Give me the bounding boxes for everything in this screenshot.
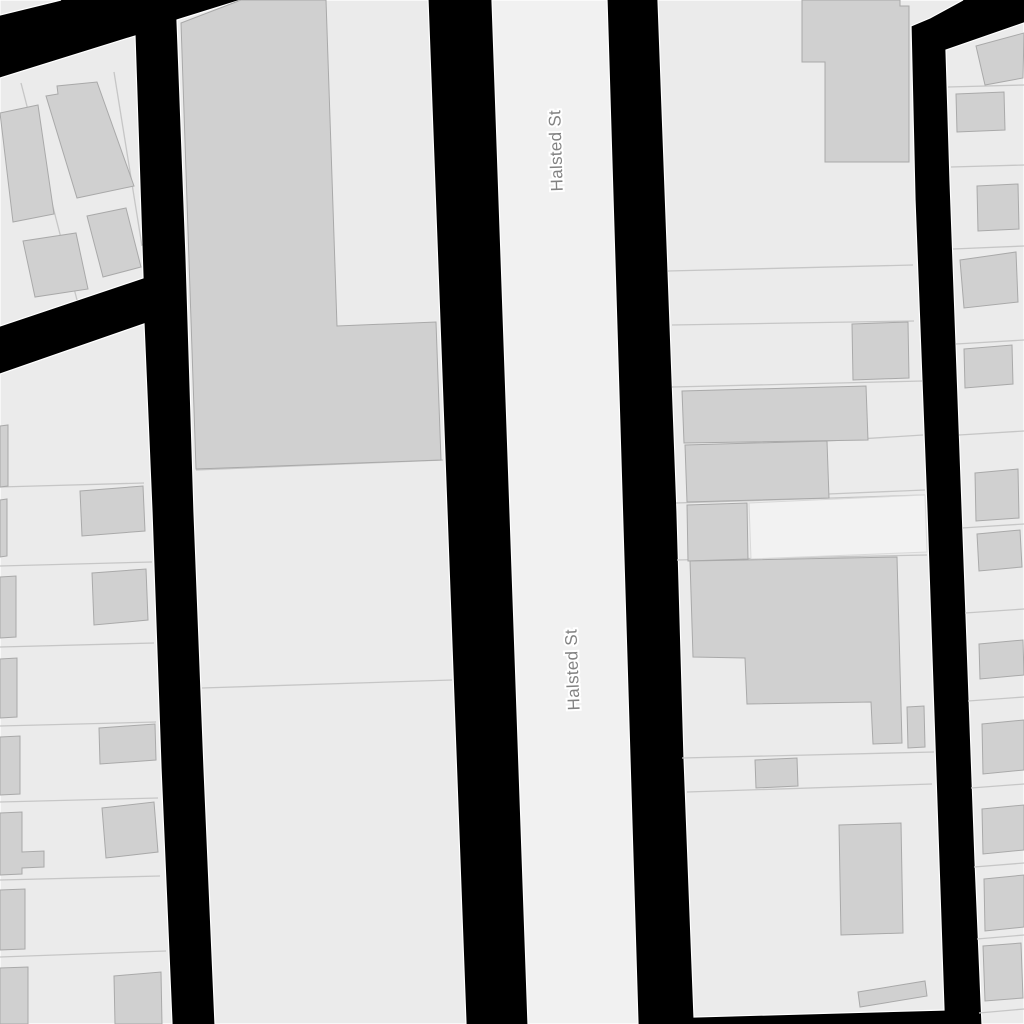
svg-text:Halsted St: Halsted St (561, 629, 583, 711)
svg-text:Halsted St: Halsted St (545, 110, 567, 192)
